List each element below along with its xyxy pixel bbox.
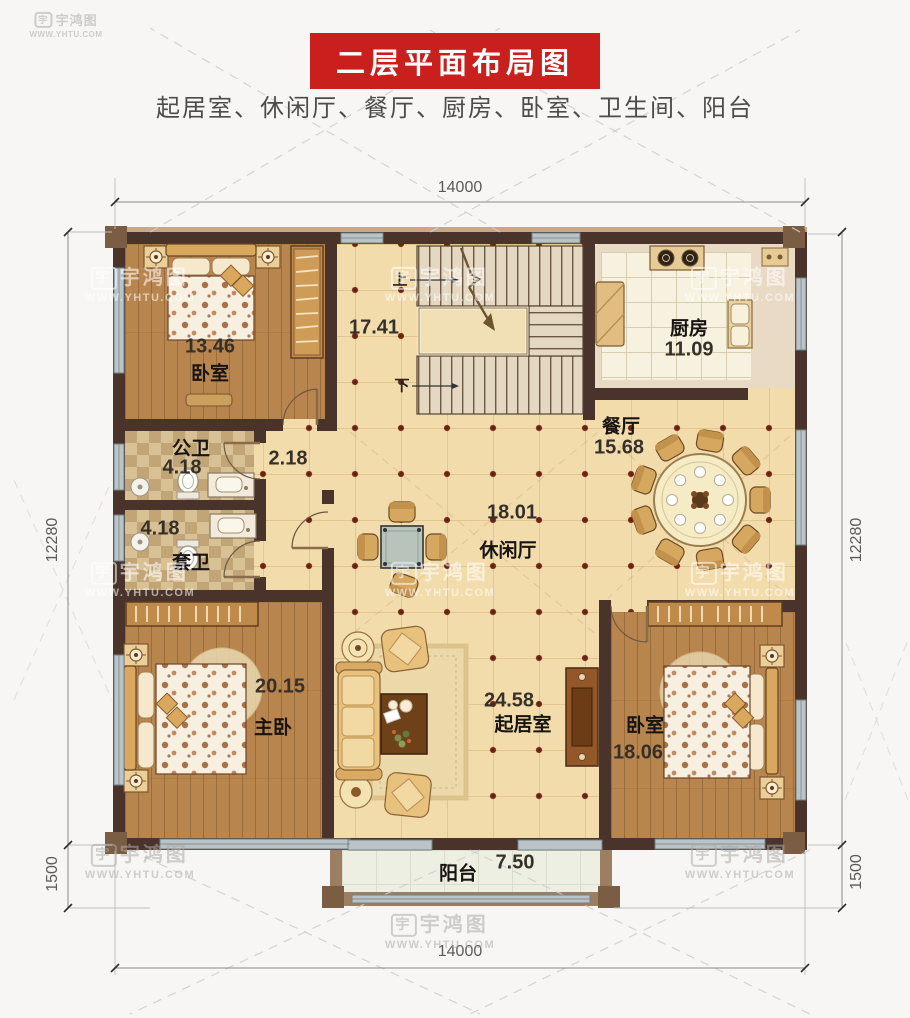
stairs-down-label: 下 (394, 375, 409, 396)
stairhall-area: 17.41 (349, 317, 399, 340)
staircase (410, 246, 583, 414)
bath-ensuite-label: 套卫 (172, 548, 210, 575)
lounge-label: 休闲厅 (479, 536, 536, 563)
bedroom1-furniture (144, 244, 323, 406)
doors (224, 389, 647, 642)
master-area: 20.15 (255, 676, 305, 699)
dim-right-lower: 1500 (848, 854, 866, 890)
master-label: 主卧 (254, 713, 292, 740)
bath-ensuite-area: 4.18 (141, 518, 180, 541)
dining-area: 15.68 (594, 437, 644, 460)
living-label: 起居室 (494, 710, 551, 737)
dim-left-lower: 1500 (44, 856, 62, 892)
master-furniture (124, 602, 262, 792)
bedroom1-area: 13.46 (185, 336, 235, 359)
living-furniture (336, 625, 598, 818)
hallway-area: 2.18 (269, 448, 308, 471)
bedroom2-area: 18.06 (613, 742, 663, 765)
bedroom1-label: 卧室 (191, 359, 229, 386)
lounge-area: 18.01 (487, 502, 537, 525)
page-subtitle: 起居室、休闲厅、餐厅、厨房、卧室、卫生间、阳台 (156, 88, 754, 123)
dining-label: 餐厅 (602, 412, 640, 439)
bedroom2-label: 卧室 (626, 711, 664, 738)
dining-table-set (630, 429, 770, 571)
kitchen-area: 11.09 (665, 339, 714, 362)
stairs-up-label: 上 (392, 269, 407, 290)
bath-public-area: 4.18 (163, 457, 202, 480)
floor-plan-page: 二层平面布局图 起居室、休闲厅、餐厅、厨房、卧室、卫生间、阳台 (0, 0, 910, 1018)
dim-top: 14000 (438, 179, 483, 197)
kitchen-label: 厨房 (670, 314, 708, 341)
dim-left: 12280 (44, 518, 62, 563)
balcony-label: 阳台 (439, 859, 477, 886)
dim-right: 12280 (848, 518, 866, 563)
balcony-area: 7.50 (496, 852, 535, 875)
bedroom2-furniture (648, 602, 784, 799)
dim-bottom: 14000 (438, 943, 483, 961)
lounge-table-set (358, 502, 446, 599)
page-title: 二层平面布局图 (310, 33, 600, 89)
